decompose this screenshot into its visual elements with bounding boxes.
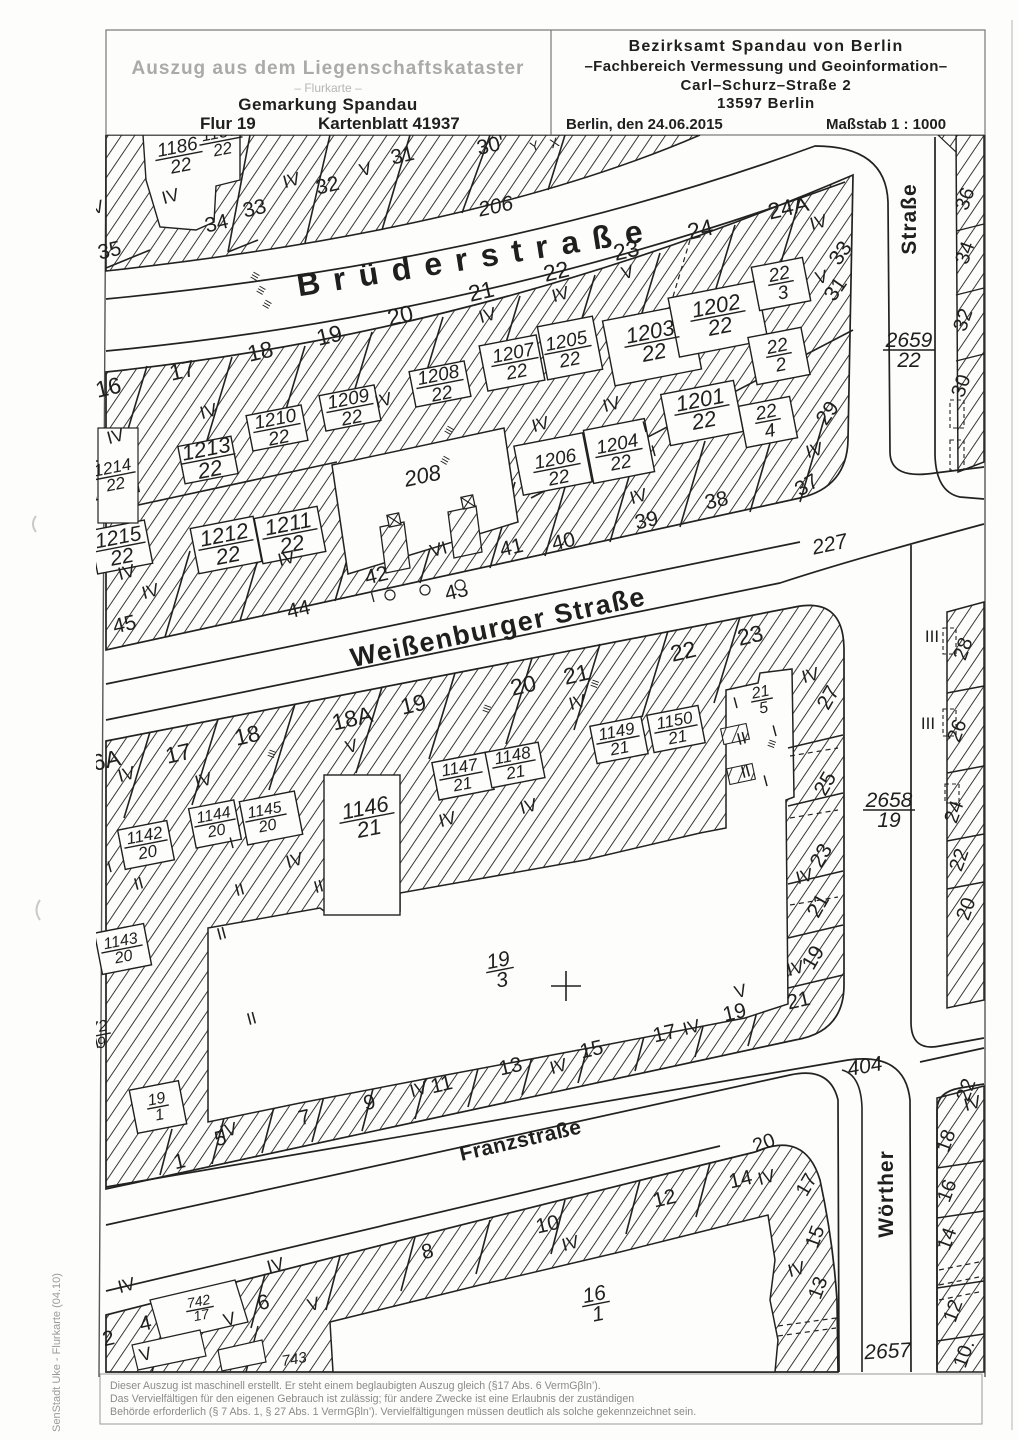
svg-text:Behörde erforderlich (§ 7 Abs.: Behörde erforderlich (§ 7 Abs. 1, § 27 A… <box>110 1406 696 1418</box>
svg-text:Bezirksamt Spandau von Berl: Bezirksamt Spandau von Berlin <box>629 38 904 55</box>
svg-text:Wörther: Wörther <box>875 1150 898 1238</box>
svg-text:Das Vervielfältigen für den ei: Das Vervielfältigen für den eigenen Gebr… <box>110 1393 634 1405</box>
svg-text:22: 22 <box>608 451 634 476</box>
svg-text:Kartenblatt 41937: Kartenblatt 41937 <box>318 114 460 133</box>
svg-text:21: 21 <box>504 761 527 783</box>
svg-text:22: 22 <box>168 154 194 179</box>
svg-text:22: 22 <box>339 406 365 431</box>
svg-text:22: 22 <box>213 541 243 570</box>
svg-text:22: 22 <box>266 426 292 451</box>
svg-text:– Flurkarte –: – Flurkarte – <box>294 81 362 95</box>
svg-text:22: 22 <box>546 466 572 491</box>
svg-text:22: 22 <box>705 312 735 341</box>
svg-text:21: 21 <box>451 773 474 795</box>
svg-text:22: 22 <box>557 348 583 373</box>
svg-text:20: 20 <box>205 821 227 841</box>
svg-text:20: 20 <box>112 947 134 967</box>
svg-text:22: 22 <box>896 349 921 372</box>
svg-text:19: 19 <box>877 809 901 832</box>
svg-text:Straße: Straße <box>898 183 921 254</box>
svg-text:22: 22 <box>211 138 235 161</box>
svg-text:22: 22 <box>639 338 669 367</box>
svg-text:2657: 2657 <box>863 1339 913 1365</box>
svg-text:Gemarkung Spandau: Gemarkung Spandau <box>238 95 417 114</box>
svg-text:20: 20 <box>136 841 160 864</box>
svg-text:SenStadt Uke - Flurkarte (04.1: SenStadt Uke - Flurkarte (04.10) <box>51 1273 63 1432</box>
svg-text:21: 21 <box>354 814 384 843</box>
svg-text:20: 20 <box>256 816 278 836</box>
svg-text:13597 Berlin: 13597 Berlin <box>717 95 815 112</box>
svg-text:Berlin, den 24.06.2015: Berlin, den 24.06.2015 <box>566 116 723 133</box>
svg-text:III: III <box>921 714 935 733</box>
svg-text:22: 22 <box>104 473 128 496</box>
svg-text:Auszug aus dem Liegenschaftska: Auszug aus dem Liegenschaftskataster <box>132 58 525 79</box>
svg-text:III: III <box>925 627 939 646</box>
svg-text:21: 21 <box>666 726 689 748</box>
svg-text:Maßstab 1 : 1000: Maßstab 1 : 1000 <box>826 116 946 133</box>
svg-text:Carl–Schurz–Straße 2: Carl–Schurz–Straße 2 <box>680 77 851 94</box>
svg-text:Dieser Auszug ist maschinell e: Dieser Auszug ist maschinell erstellt. E… <box>110 1380 601 1392</box>
svg-text:22: 22 <box>195 455 225 484</box>
svg-text:22: 22 <box>429 382 455 407</box>
svg-text:22: 22 <box>504 360 530 385</box>
svg-text:22: 22 <box>689 406 719 435</box>
svg-text:–Fachbereich Vermessung und: –Fachbereich Vermessung und Geoinformati… <box>584 58 947 75</box>
svg-text:21: 21 <box>608 737 631 759</box>
svg-text:Flur 19: Flur 19 <box>200 114 256 133</box>
